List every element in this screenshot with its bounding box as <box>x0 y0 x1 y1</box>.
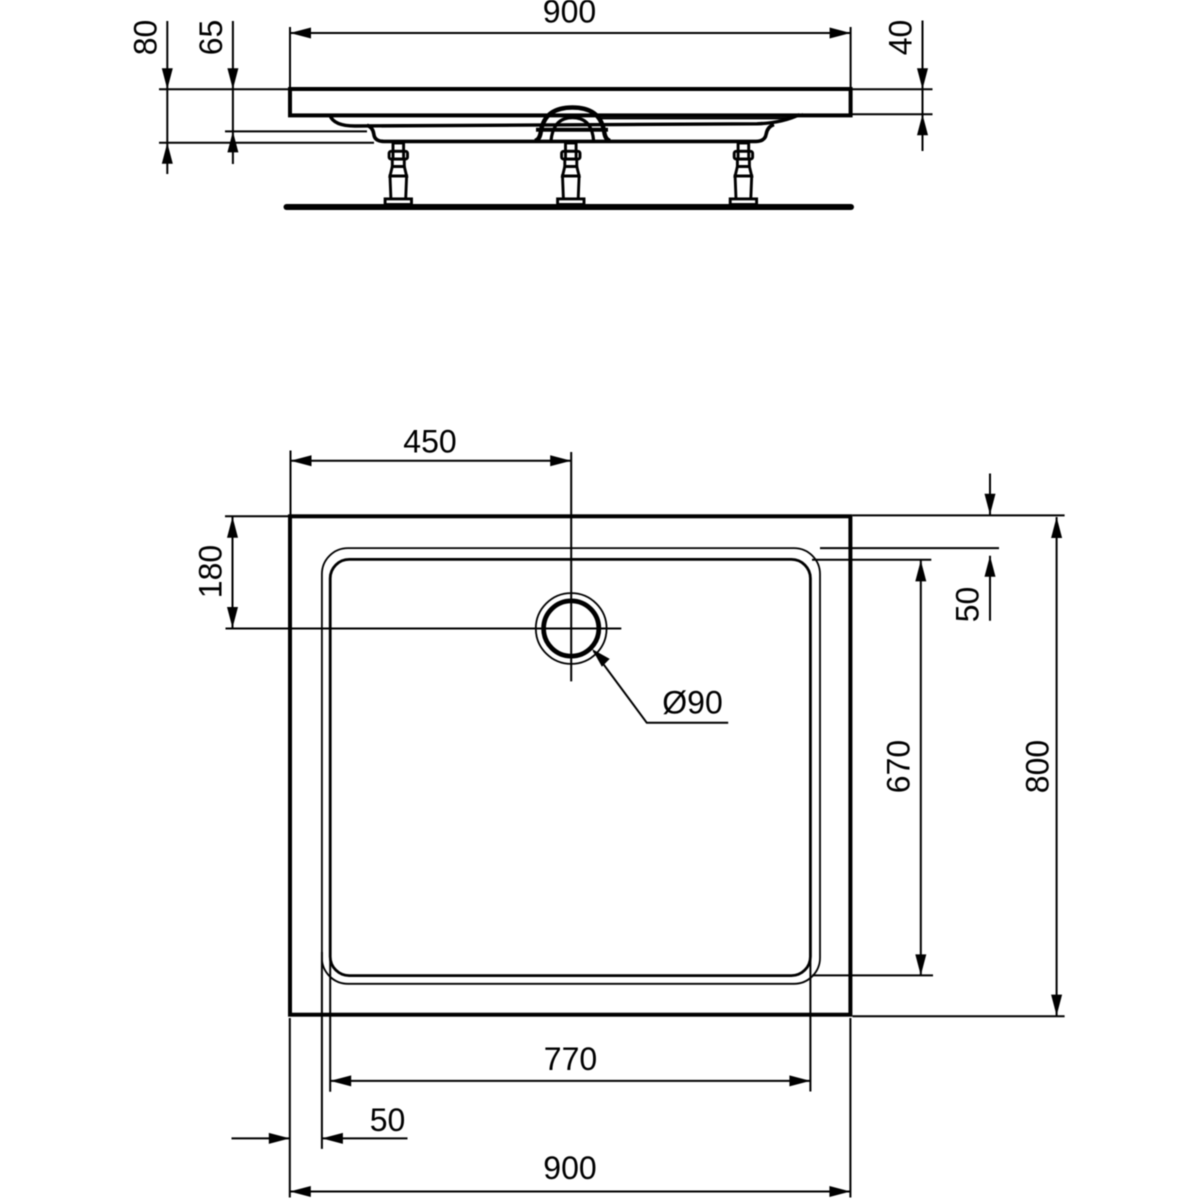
svg-text:50: 50 <box>370 1102 406 1138</box>
svg-text:900: 900 <box>543 1150 596 1186</box>
svg-text:800: 800 <box>1020 740 1056 793</box>
svg-text:900: 900 <box>543 0 596 30</box>
svg-text:670: 670 <box>881 740 917 793</box>
svg-text:65: 65 <box>193 20 229 56</box>
svg-text:180: 180 <box>193 545 229 598</box>
svg-text:450: 450 <box>403 424 456 460</box>
svg-text:50: 50 <box>950 587 986 623</box>
svg-text:770: 770 <box>544 1041 597 1077</box>
svg-text:40: 40 <box>883 20 919 56</box>
svg-text:80: 80 <box>128 20 164 56</box>
svg-text:Ø90: Ø90 <box>662 685 722 721</box>
